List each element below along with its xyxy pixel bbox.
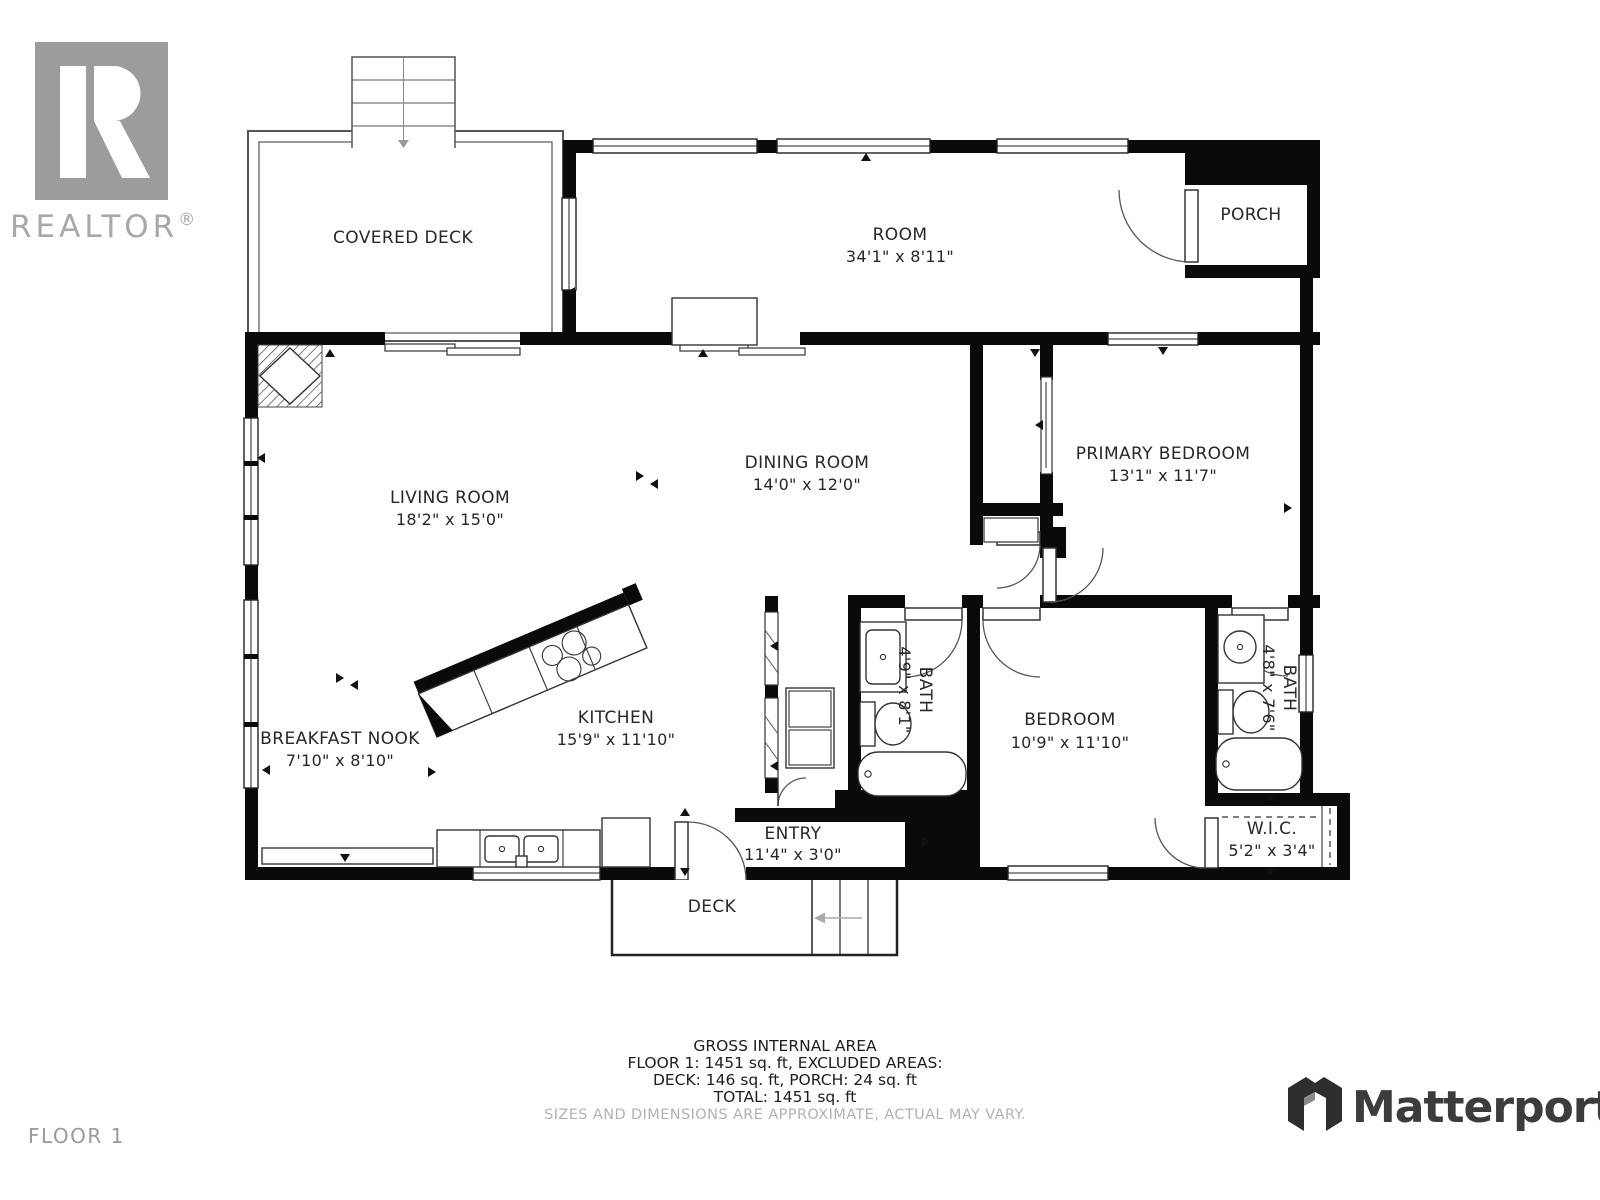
- summary-disclaimer: SIZES AND DIMENSIONS ARE APPROXIMATE, AC…: [544, 1107, 1026, 1123]
- dims-bath2: 4'8" x 7'6": [1259, 644, 1278, 731]
- porch-door: [1185, 190, 1198, 262]
- label-dining-room: DINING ROOM: [745, 453, 870, 473]
- realtor-wordmark: REALTOR®: [10, 209, 199, 245]
- matterport-logo: Matterport: [1288, 1077, 1600, 1133]
- summary-line3: TOTAL: 1451 sq. ft: [713, 1088, 857, 1106]
- area-summary: GROSS INTERNAL AREA FLOOR 1: 1451 sq. ft…: [544, 1037, 1026, 1123]
- label-bath1-group: BATH 4'9" x 8'1": [895, 646, 935, 733]
- kitchen-sink-basin: [524, 836, 558, 862]
- label-bedroom: BEDROOM: [1024, 710, 1116, 730]
- label-porch: PORCH: [1220, 205, 1281, 225]
- summary-line1: FLOOR 1: 1451 sq. ft, EXCLUDED AREAS:: [627, 1054, 942, 1072]
- floorplan-svg: REALTOR®: [0, 0, 1600, 1200]
- kitchen-fixtures: [262, 298, 834, 867]
- fireplace: [258, 345, 322, 407]
- hall-closet: [984, 518, 1038, 542]
- label-breakfast-nook: BREAKFAST NOOK: [260, 729, 420, 749]
- kitchen-sink-basin: [485, 836, 519, 862]
- dims-bedroom: 10'9" x 11'10": [1011, 733, 1130, 752]
- deck-structure: [612, 880, 897, 955]
- dims-room: 34'1" x 8'11": [846, 247, 954, 266]
- refrigerator: [602, 818, 650, 867]
- dims-kitchen: 15'9" x 11'10": [557, 730, 676, 749]
- label-wic: W.I.C.: [1247, 819, 1297, 839]
- dims-dining-room: 14'0" x 12'0": [753, 475, 861, 494]
- bath1-door: [905, 608, 962, 620]
- label-living-room: LIVING ROOM: [390, 488, 510, 508]
- hall-cabinet: [786, 688, 834, 768]
- label-room: ROOM: [873, 225, 928, 245]
- label-covered-deck: COVERED DECK: [333, 228, 473, 248]
- dims-living-room: 18'2" x 15'0": [396, 510, 504, 529]
- floorplan-page: REALTOR®: [0, 0, 1600, 1200]
- dims-entry: 11'4" x 3'0": [744, 845, 842, 864]
- dims-wic: 5'2" x 3'4": [1228, 841, 1315, 860]
- dims-bath1: 4'9" x 8'1": [895, 646, 914, 733]
- kitchen-faucet: [516, 856, 527, 867]
- bath2-sink: [1224, 631, 1256, 663]
- realtor-logo: REALTOR®: [10, 42, 199, 245]
- label-bath2: BATH: [1279, 665, 1299, 712]
- label-kitchen: KITCHEN: [578, 708, 654, 728]
- bedroom-door: [983, 608, 1040, 620]
- label-bath1: BATH: [915, 667, 935, 714]
- label-bath2-group: BATH 4'8" x 7'6": [1259, 644, 1299, 731]
- label-deck: DECK: [688, 897, 737, 917]
- bath1-toilet-tank: [860, 702, 875, 746]
- room-stove-box: [672, 298, 757, 345]
- label-entry: ENTRY: [765, 824, 822, 844]
- bath1-tub: [858, 752, 966, 796]
- matterport-icon: [1288, 1077, 1342, 1131]
- dims-breakfast-nook: 7'10" x 8'10": [286, 751, 394, 770]
- dims-primary-bedroom: 13'1" x 11'7": [1109, 466, 1217, 485]
- wic-door: [1205, 818, 1218, 868]
- summary-line2: DECK: 146 sq. ft, PORCH: 24 sq. ft: [653, 1071, 917, 1089]
- primary-bedroom-door: [1043, 548, 1056, 602]
- matterport-wordmark: Matterport: [1352, 1082, 1600, 1133]
- exterior-stairs: [352, 57, 455, 148]
- summary-title: GROSS INTERNAL AREA: [693, 1037, 877, 1055]
- bath2-toilet-tank: [1218, 690, 1233, 734]
- corridor-door-arc: [778, 778, 806, 806]
- label-primary-bedroom: PRIMARY BEDROOM: [1076, 444, 1251, 464]
- floor-label: FLOOR 1: [28, 1124, 125, 1148]
- realtor-r-stem: [60, 66, 86, 178]
